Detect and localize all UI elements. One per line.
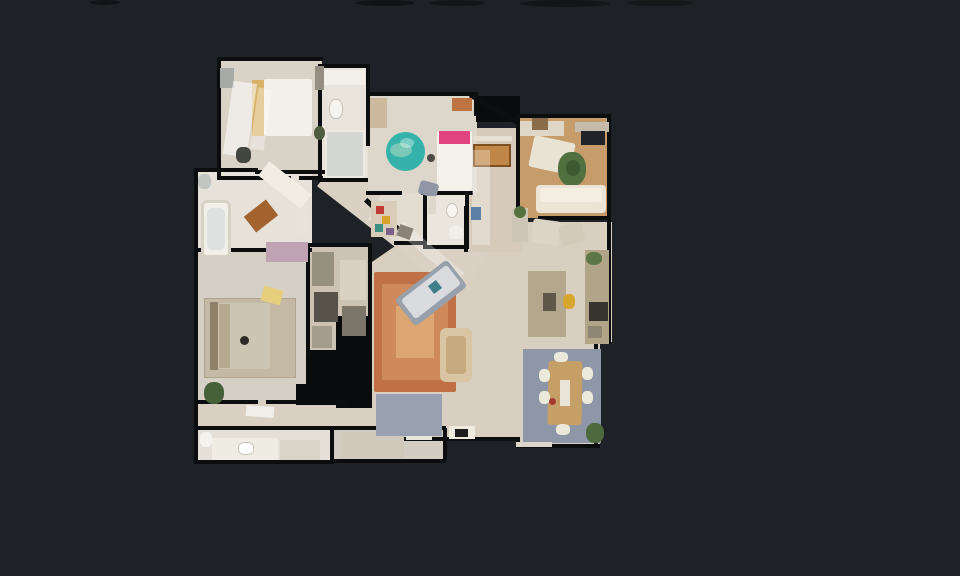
fireplace-insert xyxy=(455,429,468,437)
wall xyxy=(266,400,346,404)
kids-bed-pillow xyxy=(439,131,470,144)
wall xyxy=(217,57,323,61)
pantry-toy xyxy=(382,216,390,224)
master-plant xyxy=(204,382,224,404)
bath1-toilet xyxy=(329,99,343,119)
bed2-dresser xyxy=(315,66,324,90)
wall xyxy=(320,178,368,182)
wall xyxy=(443,428,447,460)
kids-dresser xyxy=(370,98,387,128)
scan-artifact xyxy=(90,0,120,5)
kitchen-plant xyxy=(586,252,602,265)
master-bed-item xyxy=(240,336,249,345)
master-bath-towels xyxy=(297,210,309,236)
pantry-toy xyxy=(375,224,383,232)
scan-artifact xyxy=(625,0,695,6)
dining-plant xyxy=(586,423,604,443)
wall xyxy=(306,243,372,247)
kitchen-counter-items xyxy=(588,326,602,338)
kitchen-stool xyxy=(563,294,575,309)
bath2-toilet-bowl xyxy=(446,203,458,218)
living-gray-rug xyxy=(376,394,442,436)
pantry-toy xyxy=(386,228,394,235)
den-shelf-items xyxy=(532,118,548,130)
bath1-vanity xyxy=(324,70,365,85)
wall xyxy=(194,460,332,464)
master-bed-pillows xyxy=(219,304,230,368)
wall xyxy=(464,206,468,252)
bath2-cabinet xyxy=(428,196,436,214)
closet-clothes xyxy=(312,326,332,348)
den-sofa-cushions xyxy=(540,188,602,202)
master-bath-toilet xyxy=(198,174,211,189)
den-tv xyxy=(581,131,605,145)
den-plant xyxy=(566,160,580,176)
master-bench xyxy=(266,242,308,262)
closet-clothes xyxy=(342,306,366,336)
wall xyxy=(196,426,332,430)
wall xyxy=(194,426,198,464)
wall xyxy=(366,92,478,96)
entry-bin xyxy=(471,207,481,220)
dining-chair xyxy=(582,367,593,380)
dining-table-dishes xyxy=(560,380,570,406)
living-armchair-seat xyxy=(446,336,466,374)
dining-chair xyxy=(556,424,570,435)
wall xyxy=(368,243,372,353)
closet-clothes xyxy=(340,260,366,300)
closet-clothes xyxy=(314,292,338,322)
bed2-mattress xyxy=(264,79,312,136)
wall xyxy=(194,250,198,404)
pantry-toy xyxy=(376,206,384,214)
laundry-sink xyxy=(238,442,254,455)
wall xyxy=(516,114,611,118)
dining-chair xyxy=(554,352,568,362)
wall xyxy=(320,64,370,68)
bed2-plant xyxy=(314,126,325,140)
bath2-sink xyxy=(449,226,463,239)
entry-console-plant xyxy=(514,206,526,218)
kids-toys xyxy=(452,98,472,111)
scan-artifact xyxy=(520,0,610,7)
kitchen-island-sink xyxy=(543,293,556,311)
dining-chair xyxy=(582,391,593,404)
wall xyxy=(194,168,258,172)
front-door-threshold xyxy=(474,136,512,141)
wall xyxy=(366,191,402,195)
laundry-toilet xyxy=(200,432,212,447)
laundry-shelf xyxy=(280,440,320,460)
kids-toy xyxy=(427,154,435,162)
patio-door-threshold xyxy=(516,442,552,447)
kids-rug-pattern xyxy=(400,138,414,148)
floorplan-canvas[interactable] xyxy=(0,0,960,576)
den-chair xyxy=(530,218,561,246)
hall-door xyxy=(246,405,275,418)
kitchen-range xyxy=(589,302,608,321)
entry-light-streak xyxy=(472,150,490,245)
closet-clothes xyxy=(312,252,334,286)
dining-item xyxy=(549,398,556,405)
bath1-shower xyxy=(325,130,365,178)
scan-artifact xyxy=(430,0,485,6)
dining-chair xyxy=(539,369,550,382)
scan-artifact xyxy=(355,0,415,6)
master-bed-headboard xyxy=(210,302,218,370)
master-bathtub-basin xyxy=(207,208,225,250)
wall xyxy=(334,459,446,463)
bed2-chair xyxy=(236,147,251,163)
